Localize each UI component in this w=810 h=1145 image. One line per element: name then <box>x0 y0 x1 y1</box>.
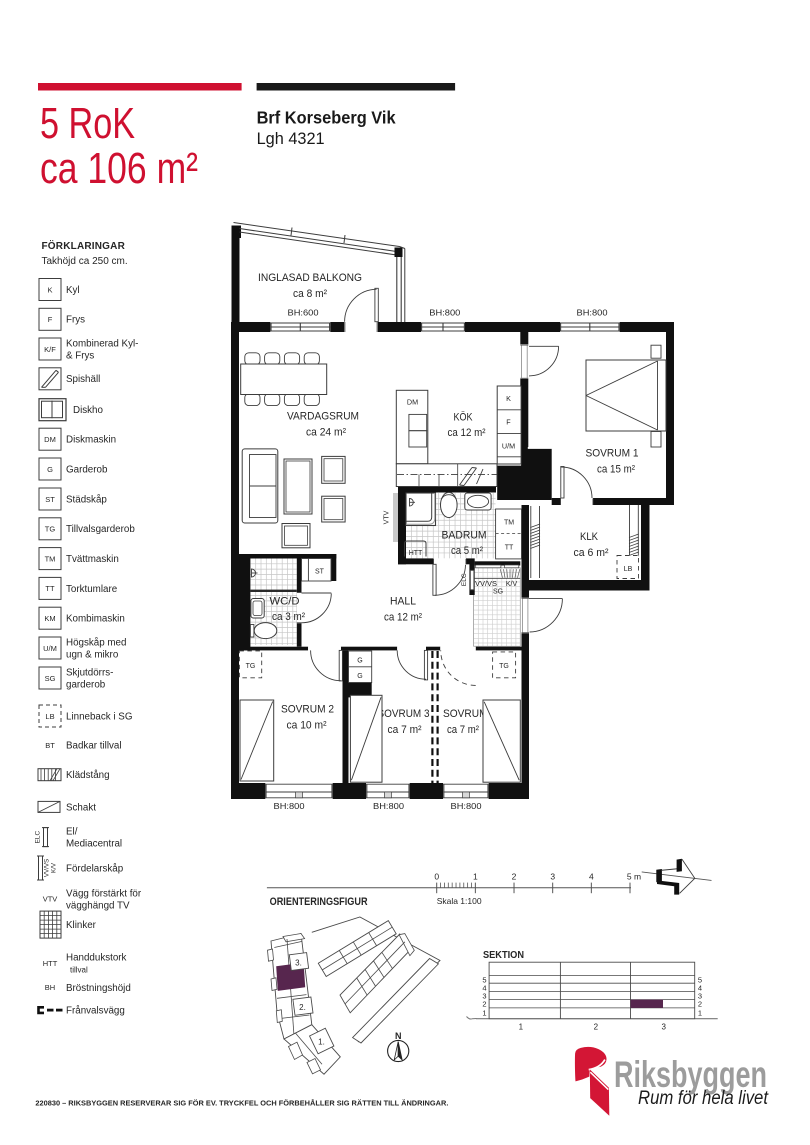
svg-text:Schakt: Schakt <box>66 802 96 813</box>
svg-text:INGLASAD BALKONG: INGLASAD BALKONG <box>258 272 362 284</box>
svg-text:ELC: ELC <box>35 830 42 843</box>
svg-text:VV/VS: VV/VS <box>44 859 51 877</box>
svg-text:Tillvalsgarderob: Tillvalsgarderob <box>66 524 135 535</box>
svg-text:Badkar tillval: Badkar tillval <box>66 741 122 752</box>
svg-text:0: 0 <box>434 872 439 882</box>
svg-text:ca 15 m²: ca 15 m² <box>597 463 635 475</box>
svg-text:1.: 1. <box>318 1038 325 1047</box>
svg-text:Frånvalsvägg: Frånvalsvägg <box>66 1006 125 1017</box>
svg-text:ORIENTERINGSFIGUR: ORIENTERINGSFIGUR <box>270 896 368 908</box>
svg-text:F: F <box>506 418 511 427</box>
svg-text:BH: BH <box>45 983 55 992</box>
svg-text:BH:600: BH:600 <box>288 309 320 318</box>
svg-text:DM: DM <box>44 435 56 444</box>
svg-text:FÖRKLARINGAR: FÖRKLARINGAR <box>42 239 126 252</box>
svg-text:Mediacentral: Mediacentral <box>66 839 122 850</box>
svg-text:Garderob: Garderob <box>66 464 108 475</box>
svg-text:Brf Korseberg Vik: Brf Korseberg Vik <box>257 108 396 128</box>
svg-text:LB: LB <box>624 566 633 573</box>
svg-text:TG: TG <box>499 663 509 670</box>
svg-text:U/M: U/M <box>502 441 515 450</box>
svg-text:G: G <box>47 465 53 474</box>
svg-text:Fördelarskåp: Fördelarskåp <box>66 863 124 874</box>
svg-text:BT: BT <box>45 741 55 750</box>
svg-text:ST: ST <box>45 495 55 504</box>
svg-text:ca 3 m²: ca 3 m² <box>272 611 305 623</box>
svg-text:KM: KM <box>44 614 55 623</box>
svg-text:Diskmaskin: Diskmaskin <box>66 435 116 446</box>
svg-text:TM: TM <box>504 520 514 527</box>
svg-text:ca 5 m²: ca 5 m² <box>451 545 483 557</box>
svg-text:ca 106 m²: ca 106 m² <box>40 144 198 193</box>
svg-text:SOVRUM 2: SOVRUM 2 <box>281 704 334 716</box>
svg-text:K: K <box>47 285 52 294</box>
svg-text:DM: DM <box>407 398 418 407</box>
svg-text:ca 12 m²: ca 12 m² <box>384 611 422 623</box>
svg-text:KLK: KLK <box>580 531 599 543</box>
svg-text:ca 12 m²: ca 12 m² <box>448 427 486 439</box>
svg-text:HALL: HALL <box>390 596 416 608</box>
svg-text:SG: SG <box>45 674 56 683</box>
svg-text:Torktumlare: Torktumlare <box>66 584 118 595</box>
svg-text:K/F: K/F <box>44 345 56 354</box>
svg-text:BH:800: BH:800 <box>577 309 609 318</box>
svg-text:SOVRUM 1: SOVRUM 1 <box>586 448 639 460</box>
svg-text:ca 8 m²: ca 8 m² <box>293 288 327 300</box>
svg-text:2: 2 <box>482 999 486 1008</box>
svg-text:3: 3 <box>661 1023 666 1032</box>
svg-text:1: 1 <box>698 1009 702 1018</box>
svg-text:3: 3 <box>550 872 555 882</box>
svg-text:1: 1 <box>482 1009 486 1018</box>
svg-text:BH:800: BH:800 <box>451 802 483 811</box>
svg-text:BH:800: BH:800 <box>429 309 461 318</box>
svg-text:1: 1 <box>519 1023 524 1032</box>
svg-text:HTT: HTT <box>409 550 423 557</box>
svg-text:U/M: U/M <box>43 644 57 653</box>
svg-text:SG: SG <box>493 589 503 596</box>
svg-text:Spishäll: Spishäll <box>66 374 100 385</box>
svg-text:TT: TT <box>505 545 514 552</box>
svg-text:BH:800: BH:800 <box>373 802 405 811</box>
svg-text:Frys: Frys <box>66 315 85 326</box>
svg-text:Högskåp med: Högskåp med <box>66 638 126 649</box>
svg-text:Lgh 4321: Lgh 4321 <box>257 129 325 148</box>
svg-text:El/: El/ <box>66 827 78 838</box>
svg-text:& Frys: & Frys <box>66 351 94 362</box>
svg-text:VTV: VTV <box>43 895 58 904</box>
svg-text:VTV: VTV <box>384 510 391 524</box>
svg-text:ca 7 m²: ca 7 m² <box>447 724 479 736</box>
svg-text:ELC: ELC <box>461 573 468 586</box>
svg-text:ca 6 m²: ca 6 m² <box>574 547 609 559</box>
svg-text:2.: 2. <box>299 1003 306 1012</box>
svg-text:F: F <box>48 315 53 324</box>
svg-text:ugn & mikro: ugn & mikro <box>66 650 119 661</box>
svg-text:Skjutdörrs-: Skjutdörrs- <box>66 668 113 679</box>
svg-text:garderob: garderob <box>66 680 106 691</box>
svg-text:ca 24 m²: ca 24 m² <box>306 426 346 438</box>
svg-text:Rum för hela livet: Rum för hela livet <box>638 1088 769 1109</box>
svg-text:TG: TG <box>45 525 56 534</box>
svg-text:4: 4 <box>589 872 594 882</box>
svg-text:2: 2 <box>698 999 702 1008</box>
svg-text:G: G <box>357 673 362 680</box>
svg-text:3.: 3. <box>295 959 302 968</box>
svg-text:WC/D: WC/D <box>270 596 300 608</box>
svg-text:Linneback i SG: Linneback i SG <box>66 711 132 722</box>
svg-text:SOVRUM 3: SOVRUM 3 <box>378 708 430 720</box>
svg-text:LB: LB <box>45 712 54 721</box>
svg-text:ca 10 m²: ca 10 m² <box>287 719 327 731</box>
svg-text:5 m: 5 m <box>627 872 641 882</box>
svg-text:G: G <box>357 657 362 664</box>
svg-text:Kombinerad Kyl-: Kombinerad Kyl- <box>66 339 138 350</box>
svg-text:tillval: tillval <box>70 965 88 974</box>
svg-text:N: N <box>395 1031 402 1041</box>
svg-text:Skala 1:100: Skala 1:100 <box>437 896 482 906</box>
svg-text:ca 7 m²: ca 7 m² <box>388 724 422 736</box>
svg-text:Kombimaskin: Kombimaskin <box>66 614 125 625</box>
svg-text:Handdukstork: Handdukstork <box>66 952 127 963</box>
svg-text:Takhöjd ca 250 cm.: Takhöjd ca 250 cm. <box>42 256 128 267</box>
svg-text:TM: TM <box>45 554 56 563</box>
svg-text:1: 1 <box>473 872 478 882</box>
svg-text:KÖK: KÖK <box>454 412 474 424</box>
svg-text:TT: TT <box>45 584 55 593</box>
svg-text:ST: ST <box>315 569 325 576</box>
svg-text:HTT: HTT <box>43 959 58 968</box>
svg-text:Bröstningshöjd: Bröstningshöjd <box>66 983 131 994</box>
svg-text:K/V: K/V <box>506 581 518 588</box>
svg-text:K: K <box>506 394 511 403</box>
svg-text:vägghängd TV: vägghängd TV <box>66 900 130 911</box>
svg-text:2: 2 <box>512 872 517 882</box>
svg-text:K/V: K/V <box>51 862 58 873</box>
svg-text:220830 – RIKSBYGGEN RESERVERAR: 220830 – RIKSBYGGEN RESERVERAR SIG FÖR E… <box>35 1099 448 1108</box>
svg-text:Kyl: Kyl <box>66 285 80 296</box>
svg-text:Vägg förstärkt för: Vägg förstärkt för <box>66 888 142 899</box>
svg-text:Klinker: Klinker <box>66 920 97 931</box>
svg-text:BH:800: BH:800 <box>274 802 306 811</box>
svg-text:5 RoK: 5 RoK <box>40 99 135 148</box>
svg-text:TG: TG <box>246 663 256 670</box>
svg-text:VARDAGSRUM: VARDAGSRUM <box>287 410 359 422</box>
svg-text:2: 2 <box>594 1023 599 1032</box>
svg-text:Städskåp: Städskåp <box>66 494 107 505</box>
svg-text:SEKTION: SEKTION <box>483 950 524 961</box>
svg-text:VV/VS: VV/VS <box>475 581 497 588</box>
svg-text:Tvättmaskin: Tvättmaskin <box>66 554 119 565</box>
svg-text:Diskho: Diskho <box>73 405 103 416</box>
svg-text:BADRUM: BADRUM <box>442 530 487 542</box>
svg-text:Klädstång: Klädstång <box>66 770 110 781</box>
